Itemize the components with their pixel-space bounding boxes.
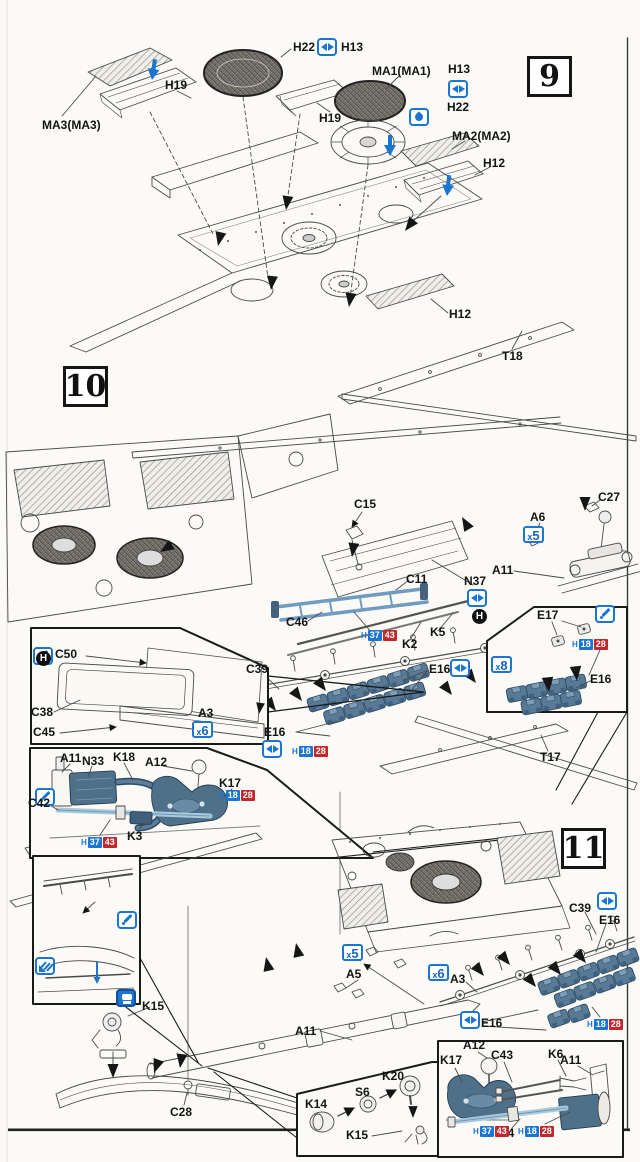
step-number-10: 10: [63, 366, 108, 407]
part-label-h22: H22: [293, 41, 315, 54]
part-label-n37: N37: [464, 575, 486, 588]
part-label-e16: E16: [590, 673, 611, 686]
part-label-h13: H13: [341, 41, 363, 54]
part-label-e16: E16: [481, 1017, 502, 1030]
part-label-c38: C38: [31, 706, 53, 719]
part-label-t18: T18: [502, 350, 523, 363]
paint-callout-18-28: H1828: [587, 1019, 623, 1030]
swap-arrows-icon: [467, 589, 487, 607]
part-label-c43: C43: [491, 1049, 513, 1062]
quantity-badge-x6: x6: [428, 964, 449, 981]
paint-callout-37-43: H3743: [473, 1126, 509, 1137]
part-label-ma1: MA1(MA1): [372, 65, 431, 78]
step-number-9: 9: [527, 56, 572, 97]
part-label-k14: K14: [305, 1098, 327, 1111]
part-label-h22: H22: [447, 101, 469, 114]
paint-callout-37-43: H3743: [81, 837, 117, 848]
part-label-s6: S6: [355, 1086, 370, 1099]
swap-arrows-icon: [317, 38, 337, 56]
paint-callout-18-28: H1828: [292, 746, 328, 757]
paint-callout-18-28: H1828: [219, 790, 255, 801]
part-label-c15: C15: [354, 498, 376, 511]
part-label-k2: K2: [402, 638, 417, 651]
quantity-badge-x5: x5: [342, 944, 363, 961]
part-label-a6: A6: [530, 511, 545, 524]
part-label-a12: A12: [463, 1039, 485, 1052]
swap-arrows-icon: [262, 740, 282, 758]
part-label-ma3: MA3(MA3): [42, 119, 101, 132]
part-label-a11: A11: [492, 564, 513, 577]
part-label-c39: C39: [569, 902, 591, 915]
part-label-a11: A11: [295, 1025, 316, 1038]
part-label-e16: E16: [264, 726, 285, 739]
part-label-c42: C42: [28, 797, 50, 810]
part-label-c39: C39: [246, 663, 268, 676]
part-label-a3: A3: [450, 973, 465, 986]
pencil-mark-icon: [595, 605, 615, 623]
insert-glue-icon: [116, 989, 136, 1007]
swap-arrows-icon: [597, 892, 617, 910]
part-label-k20: K20: [382, 1070, 404, 1083]
part-label-c27: C27: [598, 491, 620, 504]
part-label-c46: C46: [286, 616, 308, 629]
paint-callout-18-28: H1828: [518, 1126, 554, 1137]
part-label-a11: A11: [60, 752, 81, 765]
paint-callout-18-28: H1828: [572, 639, 608, 650]
part-label-c11: C11: [406, 573, 427, 586]
part-label-t17: T17: [540, 751, 561, 764]
part-label-a5: A5: [346, 968, 361, 981]
part-label-a12: A12: [145, 756, 167, 769]
quantity-badge-x5: x5: [523, 526, 544, 543]
part-label-h19: H19: [165, 79, 187, 92]
swap-arrows-icon: [450, 659, 470, 677]
part-label-h13: H13: [448, 63, 470, 76]
part-label-h12: H12: [483, 157, 505, 170]
step9-art: [62, 48, 574, 404]
paint-callout-37-43: H3743: [361, 630, 397, 641]
h-paint-circle: H: [472, 609, 487, 624]
part-label-c50: C50: [55, 648, 77, 661]
glue-drop-icon: [409, 108, 429, 126]
pencil-mark-icon: [117, 911, 137, 929]
h-paint-circle: H: [36, 651, 51, 666]
trim-knife-icon: [35, 957, 55, 975]
part-label-k15: K15: [142, 1000, 164, 1013]
swap-arrows-icon: [448, 80, 468, 98]
line-art: [0, 0, 640, 1162]
part-label-c45: C45: [33, 726, 55, 739]
part-label-n33: N33: [82, 755, 104, 768]
part-label-a3: A3: [198, 707, 213, 720]
part-label-h19: H19: [319, 112, 341, 125]
part-label-h12: H12: [449, 308, 471, 321]
step-number-11: 11: [561, 828, 606, 869]
part-label-e17: E17: [537, 609, 558, 622]
swap-arrows-icon: [460, 1011, 480, 1029]
part-label-k3: K3: [127, 830, 142, 843]
part-label-k17: K17: [440, 1054, 462, 1067]
part-label-k15: K15: [346, 1129, 368, 1142]
part-label-ma2: MA2(MA2): [452, 130, 511, 143]
quantity-badge-x8: x8: [491, 656, 512, 673]
part-label-a11: A11: [560, 1054, 581, 1067]
part-label-e16: E16: [599, 914, 620, 927]
part-label-c28: C28: [170, 1106, 192, 1119]
part-label-k5: K5: [430, 626, 445, 639]
part-label-k18: K18: [113, 751, 135, 764]
instruction-sheet: 9 10 11 MA3(MA3) H19 H22 H13 MA1(MA1) H1…: [0, 0, 640, 1162]
part-label-k17: K17: [219, 777, 241, 790]
quantity-badge-x6: x6: [192, 721, 213, 738]
part-label-e16: E16: [429, 663, 450, 676]
